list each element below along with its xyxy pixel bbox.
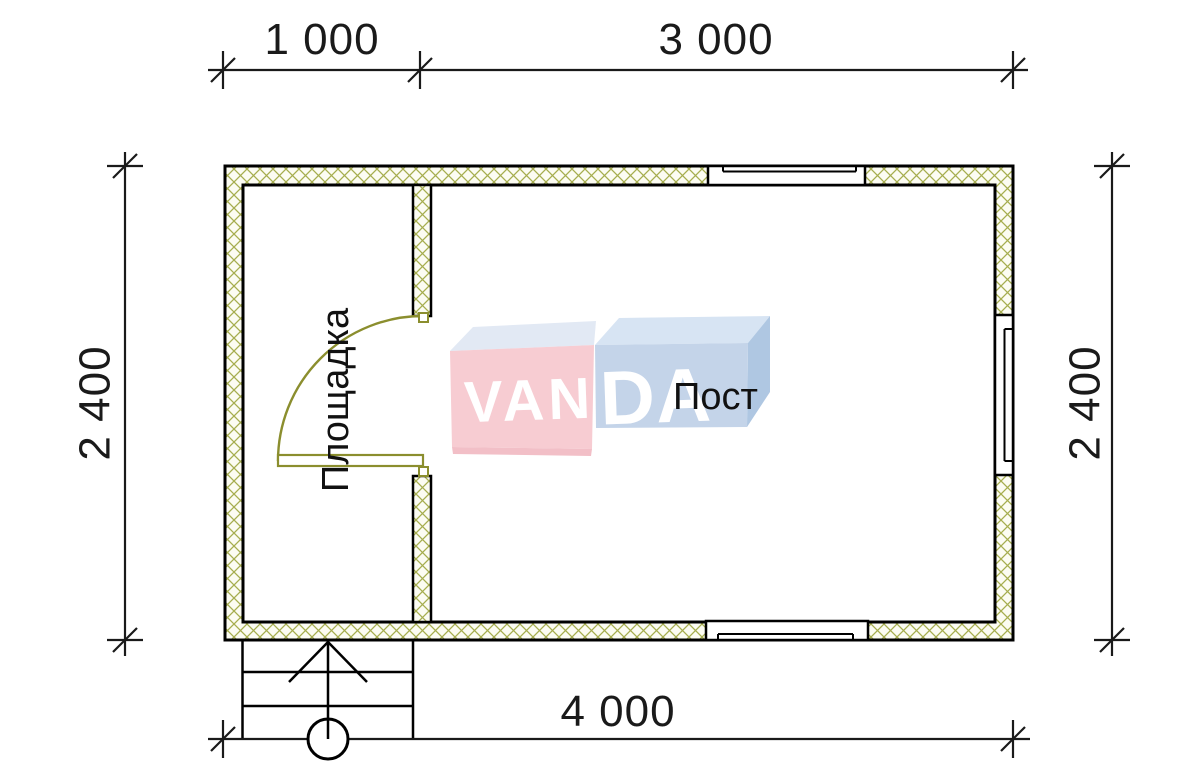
dim-label-right: 2 400 [1061, 345, 1110, 460]
dim-label-bottom: 4 000 [560, 687, 675, 736]
door-jamb-bottom [419, 467, 428, 476]
watermark-text-van: VAN [463, 366, 595, 436]
window-bottom [706, 621, 868, 640]
partition-wall-upper [413, 185, 431, 316]
door-jamb-top [419, 313, 428, 322]
window-top [708, 166, 865, 185]
room-label-ploschadka: Площадка [315, 307, 357, 492]
dim-label-left: 2 400 [71, 345, 120, 460]
dim-label-top-left: 1 000 [264, 15, 379, 64]
floor-plan-canvas: 1 000 3 000 4 000 2 400 2 400 VAN DA Пло… [0, 0, 1200, 772]
watermark-blue-box-top [595, 316, 770, 345]
partition-wall-lower [413, 476, 431, 622]
window-right [995, 315, 1013, 475]
dim-label-top-right: 3 000 [658, 15, 773, 64]
room-label-post: Пост [673, 376, 758, 418]
floor-plan-page: 1 000 3 000 4 000 2 400 2 400 VAN DA Пло… [0, 0, 1200, 772]
